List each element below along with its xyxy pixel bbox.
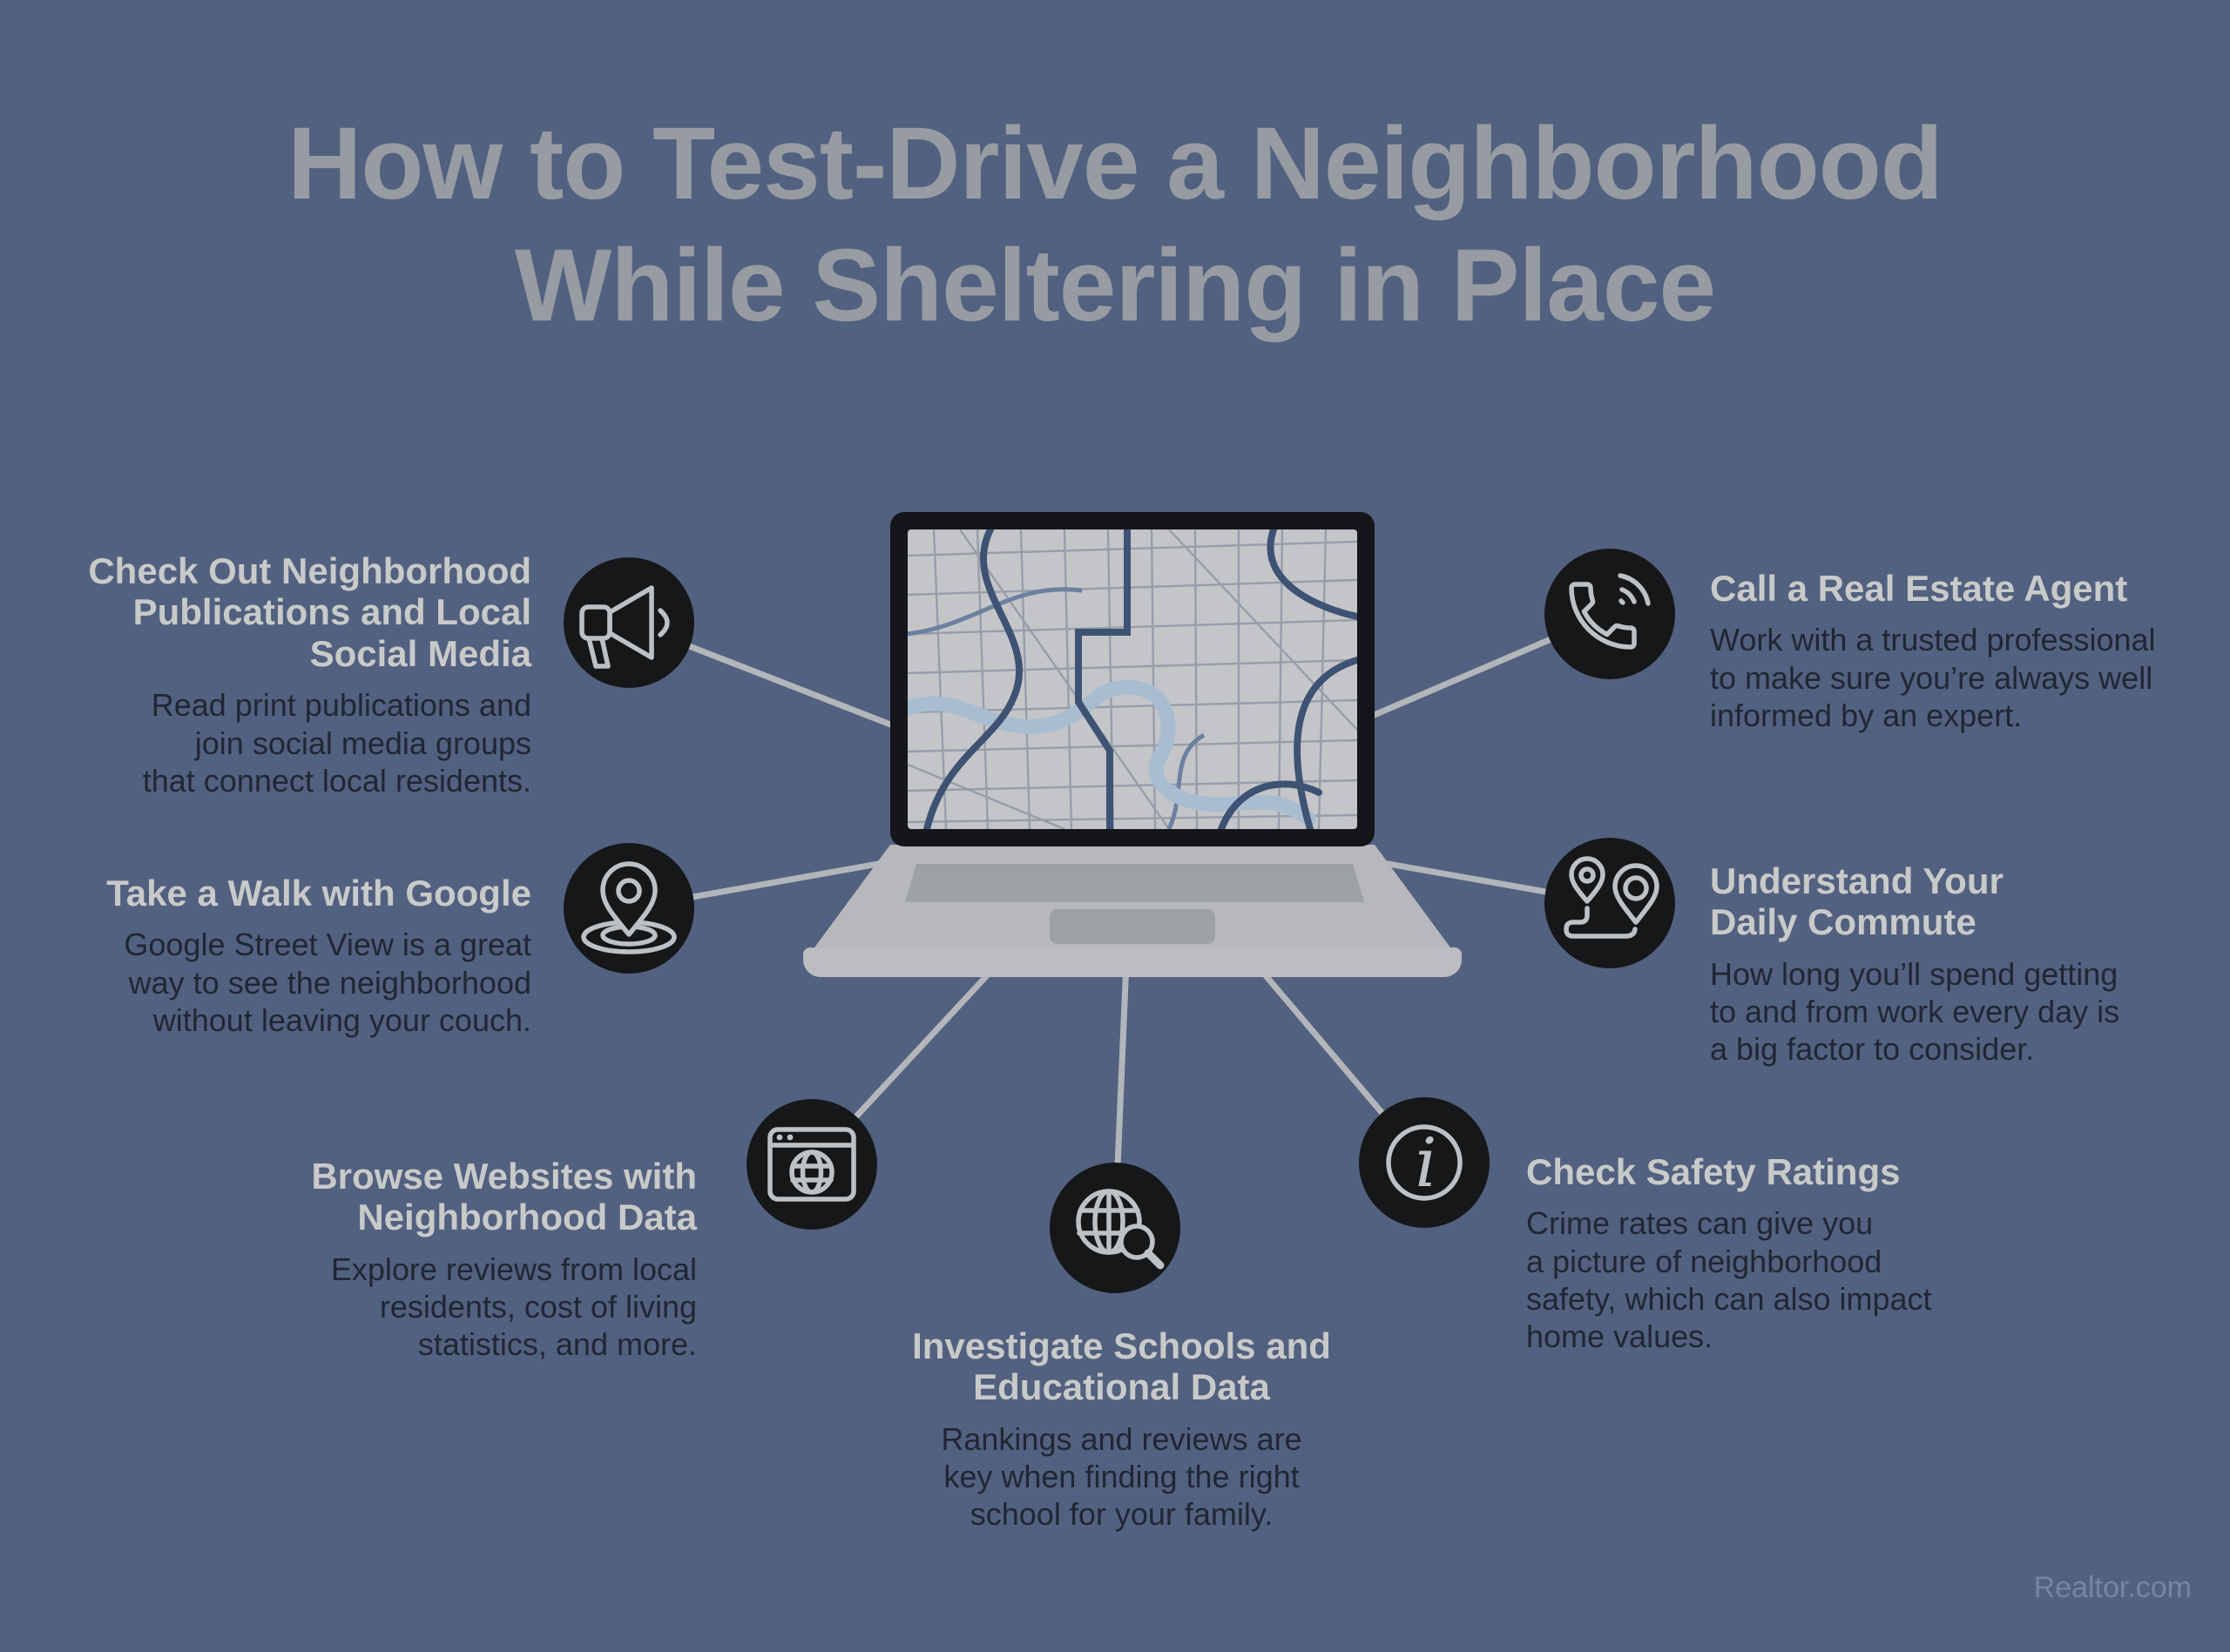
item-body: Crime rates can give you a picture of ne… (1526, 1204, 1997, 1355)
item-body: Read print publications and join social … (35, 686, 531, 799)
globe-search-icon-badge (1050, 1163, 1180, 1293)
map-pin-icon (564, 843, 694, 974)
item-body: How long you’ll spend getting to and fro… (1710, 955, 2198, 1069)
item-publications: Check Out Neighborhood Publications and … (35, 550, 531, 799)
item-body: Google Street View is a great way to see… (52, 926, 531, 1039)
item-heading: Check Out Neighborhood Publications and … (35, 550, 531, 674)
browser-globe-icon (747, 1099, 877, 1230)
laptop-trackpad (1050, 909, 1215, 944)
item-heading: Check Safety Ratings (1526, 1151, 1997, 1192)
item-heading: Take a Walk with Google (52, 873, 531, 914)
svg-text:i: i (1416, 1124, 1437, 1203)
item-body: Work with a trusted professional to make… (1710, 621, 2224, 734)
info-icon-badge: i (1359, 1097, 1490, 1228)
item-schools: Investigate Schools and Educational Data… (884, 1325, 1359, 1533)
megaphone-icon (564, 557, 694, 688)
item-street-view: Take a Walk with Google Google Street Vi… (52, 873, 531, 1039)
item-heading: Browse Websites with Neighborhood Data (287, 1156, 697, 1238)
item-heading: Investigate Schools and Educational Data (884, 1325, 1359, 1408)
megaphone-icon-badge (564, 557, 694, 688)
route-pins-icon-badge (1544, 838, 1675, 968)
globe-search-icon (1050, 1163, 1180, 1293)
item-body: Explore reviews from local residents, co… (287, 1251, 697, 1364)
route-pins-icon (1544, 838, 1675, 968)
item-commute: Understand Your Daily Commute How long y… (1710, 860, 2198, 1068)
item-body: Rankings and reviews are key when findin… (884, 1420, 1359, 1534)
map-pin-icon-badge (564, 843, 694, 974)
laptop-base (803, 947, 1462, 977)
browser-globe-icon-badge (747, 1099, 877, 1230)
laptop-screen (890, 512, 1375, 846)
info-icon: i (1359, 1097, 1490, 1228)
realtor-watermark: Realtor.com (2034, 1571, 2192, 1605)
item-safety: Check Safety Ratings Crime rates can giv… (1526, 1151, 1997, 1355)
item-websites: Browse Websites with Neighborhood Data E… (287, 1156, 697, 1363)
item-heading: Understand Your Daily Commute (1710, 860, 2198, 943)
item-heading: Call a Real Estate Agent (1710, 568, 2224, 609)
phone-icon (1544, 549, 1675, 679)
street-map-graphic (908, 529, 1357, 829)
phone-icon-badge (1544, 549, 1675, 679)
item-agent: Call a Real Estate Agent Work with a tru… (1710, 568, 2224, 734)
infographic-canvas: How to Test-Drive a Neighborhood While S… (0, 0, 2230, 1652)
